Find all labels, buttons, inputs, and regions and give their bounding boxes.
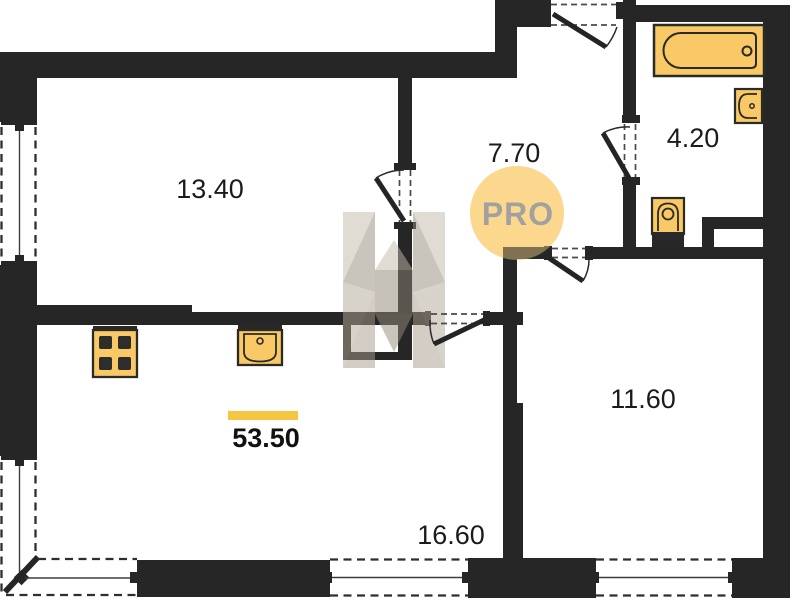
wall-segment bbox=[517, 0, 551, 27]
window-tick bbox=[728, 572, 737, 583]
door-jamb bbox=[616, 2, 623, 19]
stove-burner bbox=[99, 357, 112, 370]
window-sill bbox=[1, 261, 37, 265]
toilet-icon bbox=[652, 198, 684, 247]
window-tick bbox=[15, 125, 24, 131]
door-jamb bbox=[394, 163, 416, 170]
area-label-kitchen: 16.60 bbox=[417, 520, 485, 550]
wall-segment bbox=[0, 265, 37, 456]
wall-segment bbox=[732, 558, 790, 598]
area-label-bathroom: 4.20 bbox=[667, 123, 720, 153]
watermark-shape bbox=[375, 270, 413, 314]
wall-segment bbox=[468, 558, 596, 598]
wall-segment bbox=[398, 78, 412, 163]
wall-segment bbox=[623, 185, 636, 248]
wall-segment bbox=[503, 403, 523, 560]
pro-badge-label: PRO bbox=[482, 196, 554, 232]
kitchen-sink-icon bbox=[238, 325, 282, 365]
window-tick bbox=[15, 460, 24, 466]
door-jamb bbox=[622, 177, 640, 185]
area-label-living: 13.40 bbox=[176, 174, 244, 204]
window-sill bbox=[1, 121, 37, 125]
floor-plan-svg: 13.40 7.70 4.20 11.60 16.60 53.50 PRO bbox=[0, 0, 792, 600]
floor-plan: 13.40 7.70 4.20 11.60 16.60 53.50 PRO bbox=[0, 0, 792, 600]
stove-burner bbox=[99, 336, 112, 349]
toilet-cistern bbox=[652, 232, 684, 247]
total-area-underline bbox=[228, 411, 298, 420]
washbasin-icon bbox=[735, 89, 762, 123]
window-tick bbox=[130, 572, 139, 583]
wall-segment bbox=[763, 5, 790, 598]
wall-segment bbox=[37, 305, 192, 325]
wall-segment bbox=[503, 259, 517, 403]
window-tick bbox=[462, 572, 470, 583]
window-sill bbox=[1, 456, 37, 460]
door-jamb bbox=[394, 222, 416, 229]
wall-segment bbox=[0, 52, 517, 78]
stove-burner bbox=[118, 357, 131, 370]
duct-wall bbox=[702, 217, 714, 259]
stove-burner bbox=[118, 336, 131, 349]
stove-icon bbox=[93, 326, 137, 377]
wall-segment bbox=[0, 52, 37, 122]
area-label-hallway: 7.70 bbox=[488, 138, 541, 168]
bathtub-icon bbox=[654, 25, 764, 76]
door-jamb bbox=[585, 246, 593, 260]
wall-segment bbox=[495, 0, 517, 52]
total-area-label: 53.50 bbox=[232, 423, 300, 453]
wall-segment bbox=[137, 560, 330, 597]
window-tick bbox=[590, 572, 599, 583]
window-tick bbox=[15, 255, 24, 261]
area-label-bedroom: 11.60 bbox=[610, 384, 676, 414]
wall-segment bbox=[592, 247, 763, 259]
window-tick bbox=[324, 572, 332, 583]
door-jamb bbox=[622, 115, 640, 123]
wall-segment bbox=[623, 0, 636, 123]
